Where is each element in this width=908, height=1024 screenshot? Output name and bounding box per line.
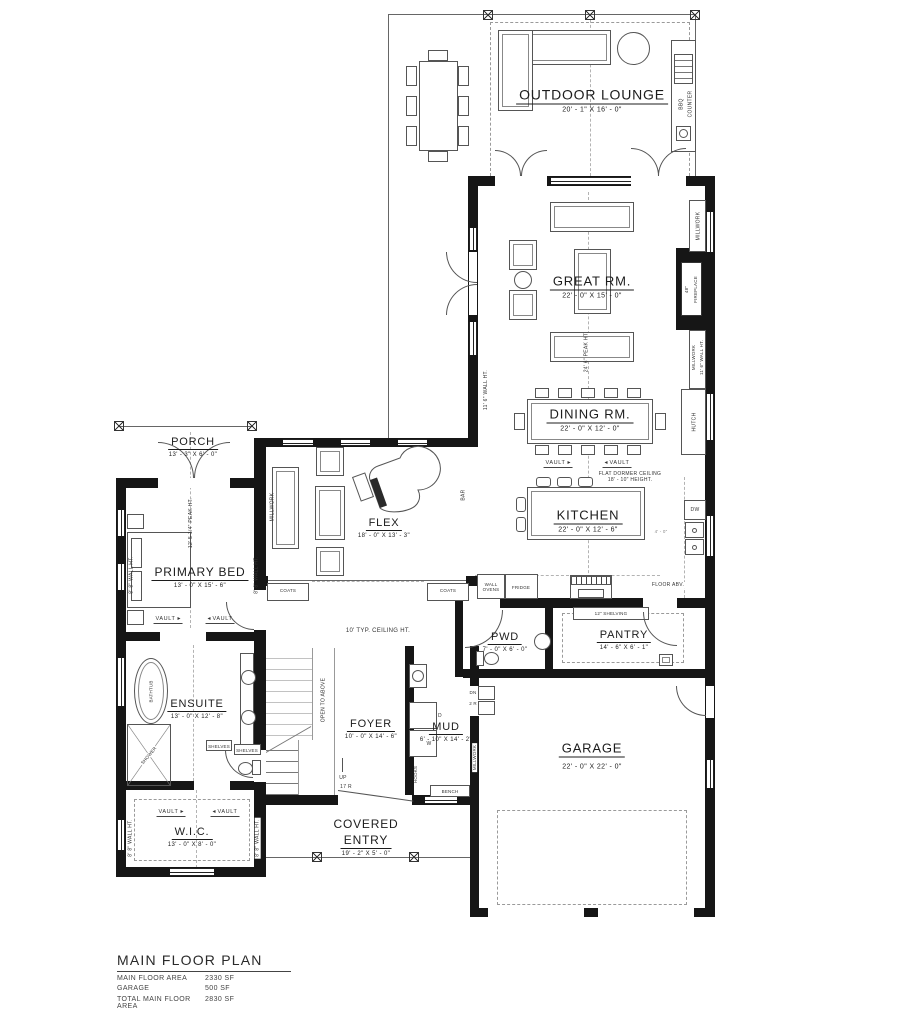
room-name: FLEX — [366, 517, 403, 531]
deck-edge-west — [388, 14, 389, 438]
vanity-sink — [241, 710, 256, 725]
bbq-sink-basin — [679, 129, 688, 138]
room-label-wic: W.I.C. 13' - 0" X 8' - 0" — [168, 822, 216, 848]
area-value: 500 SF — [205, 985, 230, 992]
opening-hall-primary — [254, 590, 266, 630]
room-label-primary-bed: PRIMARY BED 13' - 0" X 15' - 6" — [151, 563, 248, 589]
window — [283, 439, 313, 446]
room-name: PANTRY — [597, 629, 651, 643]
armchair — [509, 240, 537, 270]
plan-title: MAIN FLOOR PLAN — [117, 952, 291, 972]
garage-parking-dashed — [497, 810, 687, 905]
vanity-counter — [240, 653, 254, 749]
chair — [627, 388, 641, 398]
porch-edge — [119, 426, 252, 427]
sofa-cushion — [554, 336, 630, 358]
area-label: TOTAL MAIN FLOOR AREA — [117, 996, 205, 1010]
chair — [428, 151, 448, 162]
room-name: OUTDOOR LOUNGE — [516, 87, 668, 105]
garage-door-opening — [488, 908, 584, 917]
chair — [458, 126, 469, 146]
window — [706, 760, 714, 788]
window — [469, 322, 477, 355]
vault-arrow-right-icon: ▸ — [180, 809, 183, 815]
room-dims: 10' - 0" X 14' - 6" — [345, 734, 397, 740]
pwd-sink — [534, 633, 551, 650]
toilet-bowl — [484, 652, 499, 665]
room-dims: 13' - 0" X 15' - 6" — [151, 583, 248, 589]
chair — [458, 66, 469, 86]
room-name: DINING RM. — [547, 407, 634, 424]
vault-arrow-right-icon: ▸ — [567, 460, 570, 466]
floor-drain — [659, 654, 673, 666]
chair — [558, 445, 572, 455]
room-name: FOYER — [347, 718, 395, 732]
deck-post-icon — [483, 10, 493, 20]
entry-edge — [262, 857, 471, 858]
door-opening-great-a — [495, 176, 547, 186]
deck-post-icon — [585, 10, 595, 20]
cased-opening-dashed — [312, 581, 424, 582]
room-dims: 22' - 0" X 15' - 0" — [550, 293, 634, 300]
step — [478, 686, 495, 700]
sofa — [550, 332, 634, 362]
drain-inner — [662, 657, 670, 663]
armchair — [316, 447, 344, 476]
room-name: PORCH — [168, 436, 218, 450]
range-hood — [578, 589, 604, 598]
door-swing — [446, 284, 477, 315]
room-dims: 13' - 3" X 6' - 0" — [168, 452, 218, 458]
range-burners-icon — [571, 576, 611, 585]
room-dims: 13' - 0" X 12' - 8" — [167, 714, 226, 720]
stairs-upper-treads — [263, 648, 312, 740]
area-row: GARAGE 500 SF — [117, 985, 291, 992]
room-label-flex: FLEX 18' - 0" X 13' - 3" — [358, 513, 410, 539]
chair — [406, 96, 417, 116]
window — [469, 228, 477, 250]
window — [706, 212, 714, 252]
area-label: GARAGE — [117, 985, 205, 992]
vault-arrow-left-icon: ◂ — [605, 460, 608, 466]
grand-piano — [366, 444, 448, 514]
area-label: MAIN FLOOR AREA — [117, 975, 205, 982]
chair — [428, 50, 448, 61]
vault-label: ◂VAULT — [206, 616, 235, 624]
room-label-pantry: PANTRY 14' - 6" X 6' - 1" — [597, 625, 651, 651]
room-label-dining-rm: DINING RM. 22' - 0" X 12' - 0" — [547, 406, 634, 433]
step — [478, 701, 495, 715]
title-block: MAIN FLOOR PLAN MAIN FLOOR AREA 2330 SF … — [117, 952, 291, 1010]
vault-label: ◂VAULT — [603, 460, 632, 468]
porch-post-icon — [114, 421, 124, 431]
chair — [406, 66, 417, 86]
stool — [516, 497, 526, 512]
vault-label: VAULT▸ — [154, 616, 183, 624]
sink-drain — [692, 528, 697, 533]
mud-sink — [412, 670, 424, 682]
room-dims: 22' - 0" X 12' - 6" — [554, 527, 623, 534]
wall-wing-east — [254, 438, 266, 877]
room-label-ensuite: ENSUITE 13' - 0" X 12' - 8" — [167, 694, 226, 720]
side-table — [514, 271, 532, 289]
vault-arrow-right-icon: ▸ — [177, 616, 180, 622]
entry-post-icon — [409, 852, 419, 862]
window — [117, 820, 125, 850]
area-row: MAIN FLOOR AREA 2330 SF — [117, 975, 291, 982]
chair — [535, 445, 549, 455]
room-name: COVERED — [331, 817, 402, 831]
stair-edge — [334, 648, 335, 798]
door-swing — [446, 252, 477, 283]
room-label-garage: GARAGE 22' - 0" X 22' - 0" — [559, 740, 625, 771]
stool — [536, 477, 551, 487]
armchair — [316, 547, 344, 576]
up-arrow-icon — [342, 758, 343, 772]
area-value: 2830 SF — [205, 996, 234, 1010]
stool — [578, 477, 593, 487]
window — [706, 516, 714, 556]
chair — [406, 126, 417, 146]
vault-arrow-left-icon: ◂ — [208, 616, 211, 622]
door-swing — [225, 750, 253, 778]
room-label-great-rm: GREAT RM. 22' - 0" X 15' - 0" — [550, 273, 634, 300]
stool — [516, 517, 526, 532]
vault-arrow-left-icon: ◂ — [213, 809, 216, 815]
room-label-foyer: FOYER 10' - 0" X 14' - 6" — [345, 714, 397, 740]
window — [170, 868, 214, 876]
door-opening-porch — [158, 478, 230, 488]
room-label-outdoor-lounge: OUTDOOR LOUNGE 20' - 1" X 16' - 0" — [516, 87, 668, 114]
window — [706, 394, 714, 440]
room-name: GREAT RM. — [550, 274, 634, 291]
chair — [458, 96, 469, 116]
vault-label: VAULT▸ — [157, 809, 186, 817]
coffee-table — [315, 486, 345, 540]
sofa — [272, 467, 299, 549]
chair — [655, 413, 666, 430]
vault-label: VAULT▸ — [544, 460, 573, 468]
door-swing — [676, 686, 706, 716]
vault-label: ◂VAULT — [211, 809, 240, 817]
stairs-lower-treads — [263, 740, 298, 798]
room-dims: 22' - 0" X 22' - 0" — [559, 764, 625, 771]
room-label-pwd: PWD 7' - 0" X 6' - 0" — [483, 627, 528, 653]
room-name: ENSUITE — [167, 698, 226, 712]
sofa-cushion — [276, 471, 295, 545]
nightstand — [127, 514, 144, 529]
vanity-sink — [241, 670, 256, 685]
entry-post-icon — [312, 852, 322, 862]
chair — [604, 388, 618, 398]
sofa-cushion — [554, 206, 630, 228]
stool — [557, 477, 572, 487]
area-value: 2330 SF — [205, 975, 234, 982]
room-dims: 14' - 6" X 6' - 1" — [597, 645, 651, 651]
garage-door-opening — [598, 908, 694, 917]
stair-edge — [312, 648, 313, 740]
room-label-porch: PORCH 13' - 3" X 6' - 0" — [168, 432, 218, 458]
window — [117, 658, 125, 706]
room-dims: 18' - 0" X 13' - 3" — [358, 533, 410, 539]
stair-edge — [298, 740, 299, 798]
room-dims: 22' - 0" X 12' - 0" — [547, 426, 634, 433]
outdoor-round-table — [617, 32, 650, 65]
window — [425, 796, 457, 804]
room-dims: 19' - 2" X 5' - 0" — [331, 851, 402, 857]
room-label-covered-entry: COVERED ENTRY 19' - 2" X 5' - 0" — [331, 815, 402, 857]
room-name: PRIMARY BED — [151, 565, 248, 581]
chair — [558, 388, 572, 398]
door-opening-great-b — [631, 176, 686, 186]
floor-plan-canvas: OUTDOOR LOUNGE 20' - 1" X 16' - 0" GREAT… — [0, 0, 908, 1024]
wall-garage-north — [463, 669, 715, 678]
table-inner — [319, 490, 341, 536]
door-opening-ensuite-n — [160, 632, 206, 641]
chair — [514, 413, 525, 430]
window — [117, 510, 125, 536]
room-name: MUD — [429, 721, 462, 735]
porch-post-icon — [247, 421, 257, 431]
chair — [581, 445, 595, 455]
chair-cushion — [320, 551, 340, 572]
sink-drain — [692, 545, 697, 550]
chair-cushion — [513, 244, 533, 266]
room-name: PWD — [488, 631, 522, 645]
room-name: W.I.C. — [172, 826, 213, 840]
wall-pwd-west — [455, 598, 463, 677]
deck-post-icon — [690, 10, 700, 20]
area-row: TOTAL MAIN FLOOR AREA 2830 SF — [117, 996, 291, 1010]
room-dims: 13' - 0" X 8' - 0" — [168, 842, 216, 848]
door-opening-garage-side — [706, 686, 714, 718]
toilet-tank — [476, 651, 484, 666]
room-name: GARAGE — [559, 741, 625, 758]
sofa — [550, 202, 634, 232]
chair — [581, 388, 595, 398]
armchair — [509, 290, 537, 320]
door-opening-wic — [194, 781, 230, 790]
nightstand — [127, 610, 144, 625]
window — [117, 564, 125, 590]
room-dims: 7' - 0" X 6' - 0" — [483, 647, 528, 653]
chair — [627, 445, 641, 455]
outdoor-dining-table — [419, 61, 458, 151]
window — [551, 177, 632, 185]
chair — [604, 445, 618, 455]
bbq-grill-icon — [674, 54, 693, 84]
room-label-kitchen: KITCHEN 22' - 0" X 12' - 6" — [554, 507, 623, 534]
chair-cushion — [513, 294, 533, 316]
deck-edge-north — [388, 14, 696, 15]
toilet-tank — [252, 760, 261, 775]
room-label-mud: MUD 6' - 10" X 14' - 2" — [420, 717, 472, 743]
front-door-opening — [338, 795, 412, 805]
room-name: ENTRY — [341, 833, 391, 849]
room-dims: 20' - 1" X 16' - 0" — [516, 107, 668, 114]
room-name: KITCHEN — [554, 508, 623, 525]
chair-cushion — [320, 451, 340, 472]
chair — [535, 388, 549, 398]
